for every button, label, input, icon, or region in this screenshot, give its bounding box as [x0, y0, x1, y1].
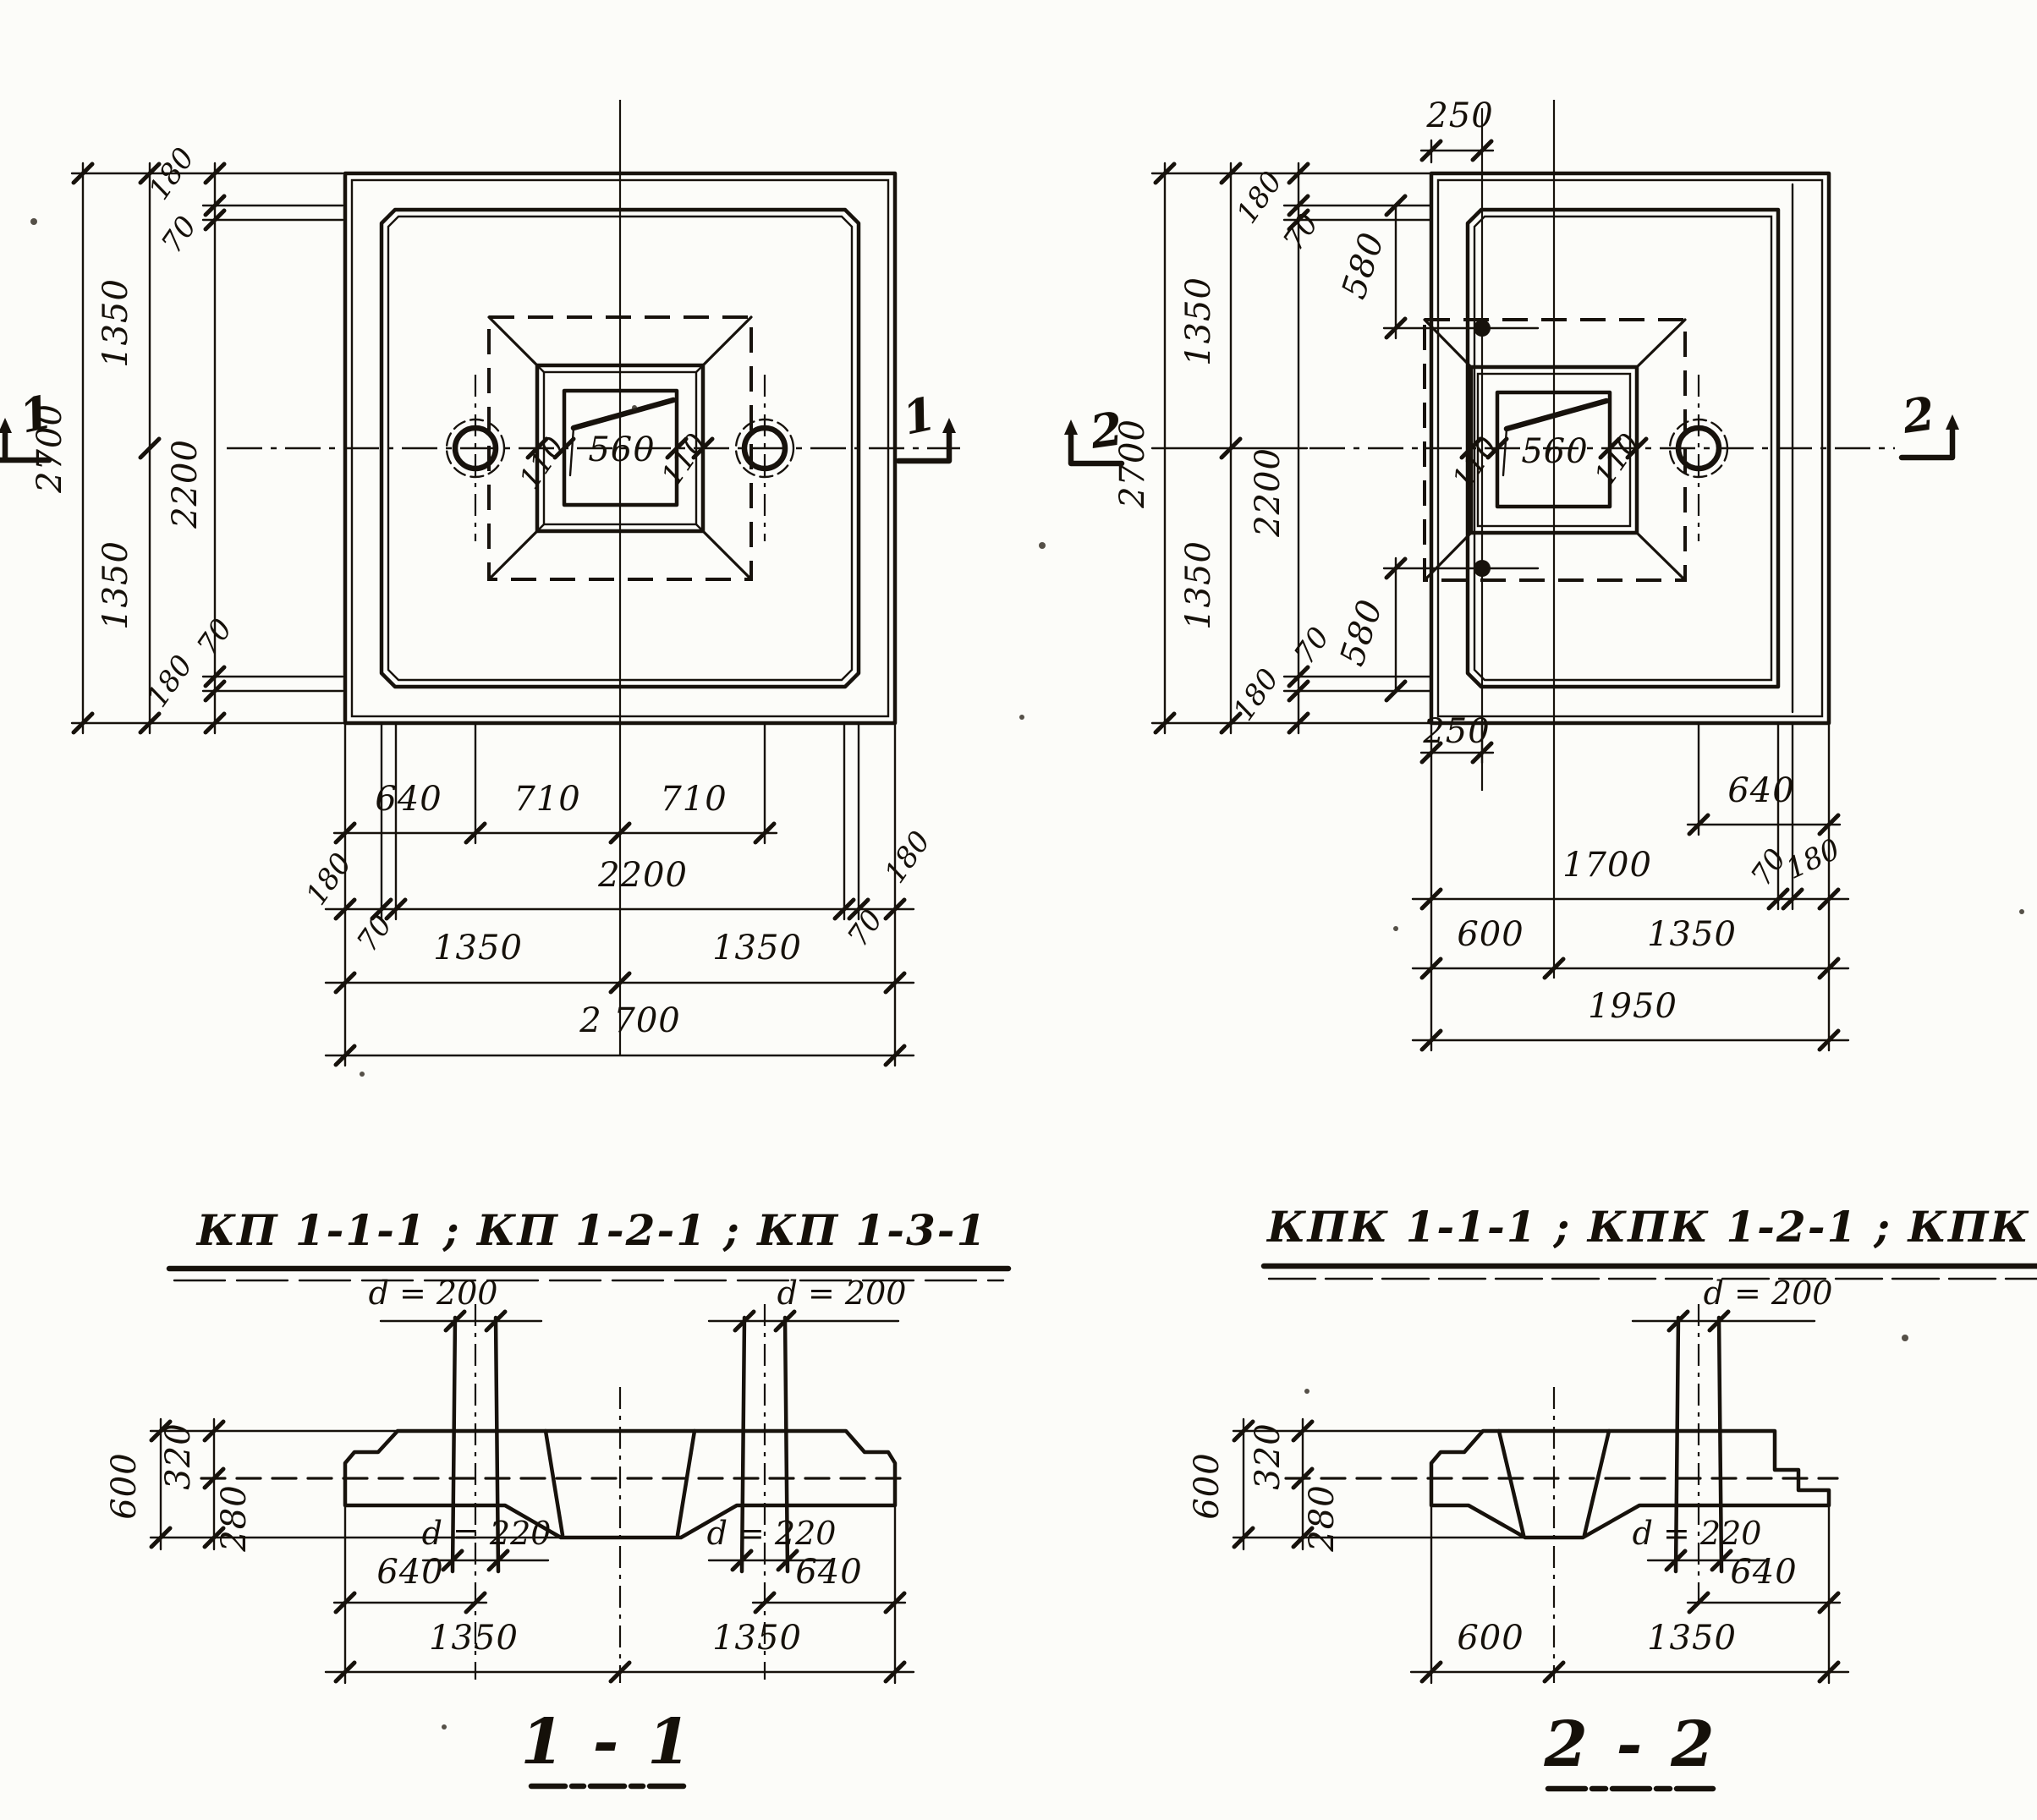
- dim-label-110: 110: [655, 428, 714, 492]
- dim-label-d200: d = 200: [777, 1275, 907, 1312]
- dim-label-70: 70: [190, 612, 239, 661]
- dim-label-2200: 2200: [166, 439, 205, 529]
- dim-label-640: 640: [795, 1553, 862, 1592]
- dim-label-70: 70: [1277, 207, 1326, 256]
- dim-label-d220: d = 220: [1633, 1515, 1762, 1552]
- dim-label-2200: 2200: [597, 856, 688, 895]
- dim-label-280: 280: [215, 1484, 254, 1552]
- dim-label-710: 710: [660, 780, 727, 819]
- dim-label-1350: 1350: [712, 929, 802, 968]
- title-block-kp: КП 1-1-1 ; КП 1-2-1 ; КП 1-3-1: [169, 1205, 1008, 1280]
- dim-label-1350: 1350: [712, 1619, 802, 1658]
- section-1-1: d = 200 d = 200 d = 220 d = 220 600 320 …: [105, 1275, 914, 1786]
- dim-label-600: 600: [1188, 1452, 1227, 1519]
- plan-kp-title: КП 1-1-1 ; КП 1-2-1 ; КП 1-3-1: [195, 1205, 988, 1255]
- slab-outline: [1431, 1431, 1829, 1538]
- dim-label-710: 710: [513, 780, 580, 819]
- dim-label-1350: 1350: [1179, 540, 1218, 630]
- dim-label-180: 180: [1781, 832, 1845, 886]
- dim-label-560: 560: [1521, 432, 1588, 471]
- dim-label-2700: 2 700: [579, 1001, 681, 1040]
- scan-noise: [30, 218, 2024, 1730]
- plan-kpk: 250 2700 1350 1350 2200 180 70 580 180 7…: [1064, 96, 1959, 1050]
- blueprint-sheet: 2700 1350 1350 2200 180 70 70 180 110 56…: [0, 0, 2037, 1820]
- dim-label-d220: d = 220: [422, 1515, 552, 1552]
- pencil-mark: [574, 400, 673, 428]
- plan-kp: 2700 1350 1350 2200 180 70 70 180 110 56…: [0, 100, 960, 1066]
- dim-label-600: 600: [105, 1452, 144, 1519]
- dim-label-2200: 2200: [1249, 447, 1288, 538]
- dim-label-320: 320: [1249, 1423, 1288, 1489]
- section-marker-label: 1: [898, 386, 940, 445]
- plan-kpk-title: КПК 1-1-1 ; КПК 1-2-1 ; КПК 1-3-1: [1266, 1202, 2037, 1252]
- dim-label-580: 580: [1333, 595, 1391, 671]
- dim-label-70: 70: [155, 210, 204, 259]
- dim-label-600: 600: [1457, 1619, 1524, 1658]
- section-cut-marker-2-right: 2: [1898, 386, 1959, 458]
- dim-label-1950: 1950: [1588, 987, 1677, 1026]
- dim-label-1350: 1350: [96, 540, 135, 630]
- dim-label-180: 180: [878, 825, 937, 890]
- dim-label-640: 640: [376, 1553, 443, 1592]
- dim-label-1350: 1350: [1647, 1619, 1737, 1658]
- dim-label-280: 280: [1303, 1484, 1342, 1552]
- dim-label-250: 250: [1425, 96, 1493, 135]
- dim-label-560: 560: [588, 430, 655, 469]
- dim-label-1350: 1350: [96, 278, 135, 368]
- dim-label-640: 640: [1727, 771, 1794, 810]
- dim-label-180: 180: [1230, 166, 1289, 230]
- dim-label-1350: 1350: [433, 929, 523, 968]
- section-2-2-title: 2 - 2: [1543, 1708, 1717, 1781]
- dim-label-250: 250: [1422, 712, 1490, 751]
- section-marker-label: 2: [1898, 386, 1938, 444]
- dim-label-1350: 1350: [429, 1619, 519, 1658]
- dim-label-d220: d = 220: [707, 1515, 837, 1552]
- dim-label-1700: 1700: [1562, 846, 1652, 885]
- title-block-kpk: КПК 1-1-1 ; КПК 1-2-1 ; КПК 1-3-1: [1264, 1202, 2037, 1279]
- dim-label-d200: d = 200: [1704, 1275, 1833, 1312]
- dim-label-1350: 1350: [1647, 915, 1737, 954]
- section-2-2: d = 200 d = 220 600 320 280 640 600 1350…: [1188, 1275, 1848, 1789]
- dim-label-640: 640: [1730, 1553, 1797, 1592]
- dim-label-70: 70: [841, 903, 890, 952]
- dim-label-320: 320: [159, 1423, 198, 1489]
- section-marker-label: 1: [14, 384, 57, 443]
- section-cut-marker-2-left: 2: [1064, 401, 1126, 463]
- dim-label-600: 600: [1457, 915, 1524, 954]
- section-cut-marker-1-right: 1: [898, 386, 956, 461]
- dim-label-1350: 1350: [1179, 277, 1218, 366]
- dim-label-d200: d = 200: [369, 1275, 498, 1312]
- dim-label-70: 70: [1288, 621, 1337, 670]
- dim-label-640: 640: [375, 780, 442, 819]
- section-marker-label: 2: [1086, 401, 1126, 459]
- dim-label-580: 580: [1335, 227, 1392, 304]
- section-1-1-title: 1 - 1: [520, 1706, 694, 1779]
